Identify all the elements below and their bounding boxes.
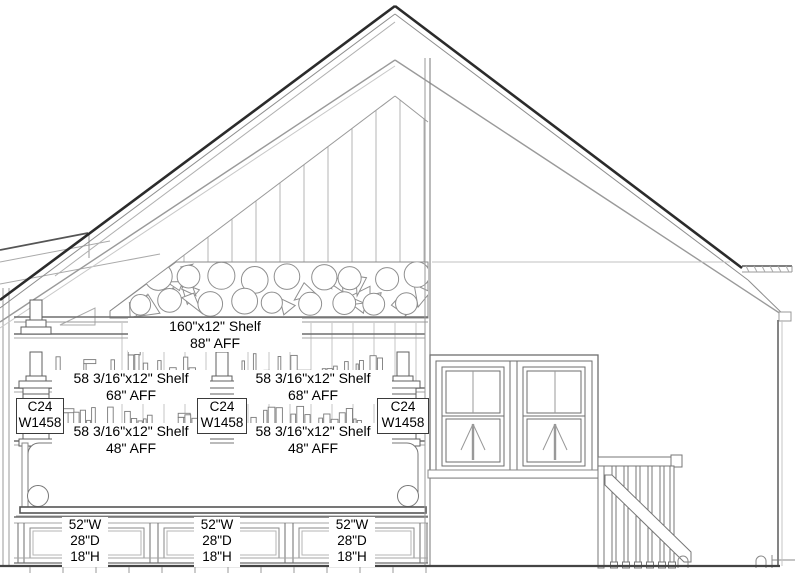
column-code: C24 (198, 399, 246, 415)
column-code: C24 (378, 399, 428, 415)
right-wall (778, 312, 791, 566)
shelf-size: 58 3/16"x12" Shelf (234, 370, 392, 387)
cabinet-height: 18"H (62, 549, 108, 565)
cabinet-tag: 52"W 28"D 18"H (329, 517, 375, 567)
cabinet-height: 18"H (329, 549, 375, 565)
window-right (523, 367, 585, 466)
elevation-linework (0, 0, 800, 579)
shelf-height: 68" AFF (52, 387, 210, 404)
cabinet-depth: 28"D (194, 533, 240, 549)
window-left (442, 367, 504, 466)
bolster-cushion (398, 486, 419, 507)
column-code: C24 (17, 399, 63, 415)
shelf-68-label-left: 58 3/16"x12" Shelf 68" AFF (52, 370, 210, 404)
column-model: W1458 (378, 415, 428, 431)
column-tag: C24 W1458 (197, 398, 247, 434)
elevation-drawing: 160"x12" Shelf 88" AFF 58 3/16"x12" Shel… (0, 0, 800, 579)
cabinet-height: 18"H (194, 549, 240, 565)
cabinet-depth: 28"D (329, 533, 375, 549)
shelf-size: 58 3/16"x12" Shelf (234, 423, 392, 440)
cabinet-depth: 28"D (62, 533, 108, 549)
right-room (425, 58, 730, 566)
bolster-cushion (28, 486, 49, 507)
shelf-size: 160"x12" Shelf (128, 318, 302, 335)
shelf-height: 48" AFF (234, 440, 392, 457)
left-wall-edge (3, 288, 9, 566)
shelf-48-label-left: 58 3/16"x12" Shelf 48" AFF (52, 423, 210, 457)
window-sill (428, 470, 602, 478)
floor-line (0, 566, 780, 573)
shelf-48-label-right: 58 3/16"x12" Shelf 48" AFF (234, 423, 392, 457)
cabinet-tag: 52"W 28"D 18"H (194, 517, 240, 567)
stair-railing (598, 455, 795, 568)
shelf-height: 48" AFF (52, 440, 210, 457)
column-model: W1458 (198, 415, 246, 431)
cabinet-tag: 52"W 28"D 18"H (62, 517, 108, 567)
firewood-band (14, 256, 430, 322)
shelf-size: 58 3/16"x12" Shelf (52, 423, 210, 440)
cabinet-width: 52"W (194, 517, 240, 533)
cabinet-width: 52"W (62, 517, 108, 533)
column-tag: C24 W1458 (377, 398, 429, 434)
column-tag: C24 W1458 (16, 398, 64, 434)
shelf-88-label: 160"x12" Shelf 88" AFF (128, 318, 302, 352)
shelf-68-label-right: 58 3/16"x12" Shelf 68" AFF (234, 370, 392, 404)
double-window (428, 355, 602, 478)
shelf-height: 88" AFF (128, 335, 302, 352)
column-model: W1458 (17, 415, 63, 431)
shelf-size: 58 3/16"x12" Shelf (52, 370, 210, 387)
cabinet-width: 52"W (329, 517, 375, 533)
shelf-height: 68" AFF (234, 387, 392, 404)
